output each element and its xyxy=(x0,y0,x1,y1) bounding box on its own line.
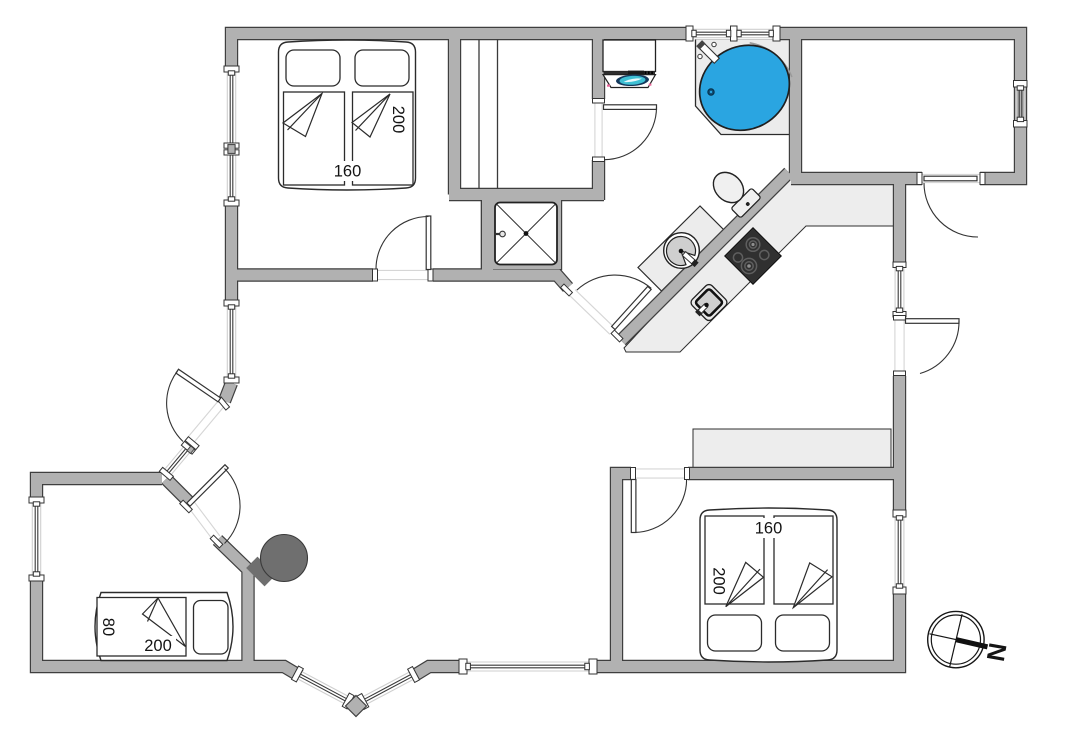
svg-text:160: 160 xyxy=(334,163,362,181)
svg-text:200: 200 xyxy=(144,637,172,655)
svg-text:200: 200 xyxy=(710,567,728,595)
svg-text:160: 160 xyxy=(755,520,783,538)
svg-text:80: 80 xyxy=(99,618,117,636)
svg-text:200: 200 xyxy=(389,106,407,134)
